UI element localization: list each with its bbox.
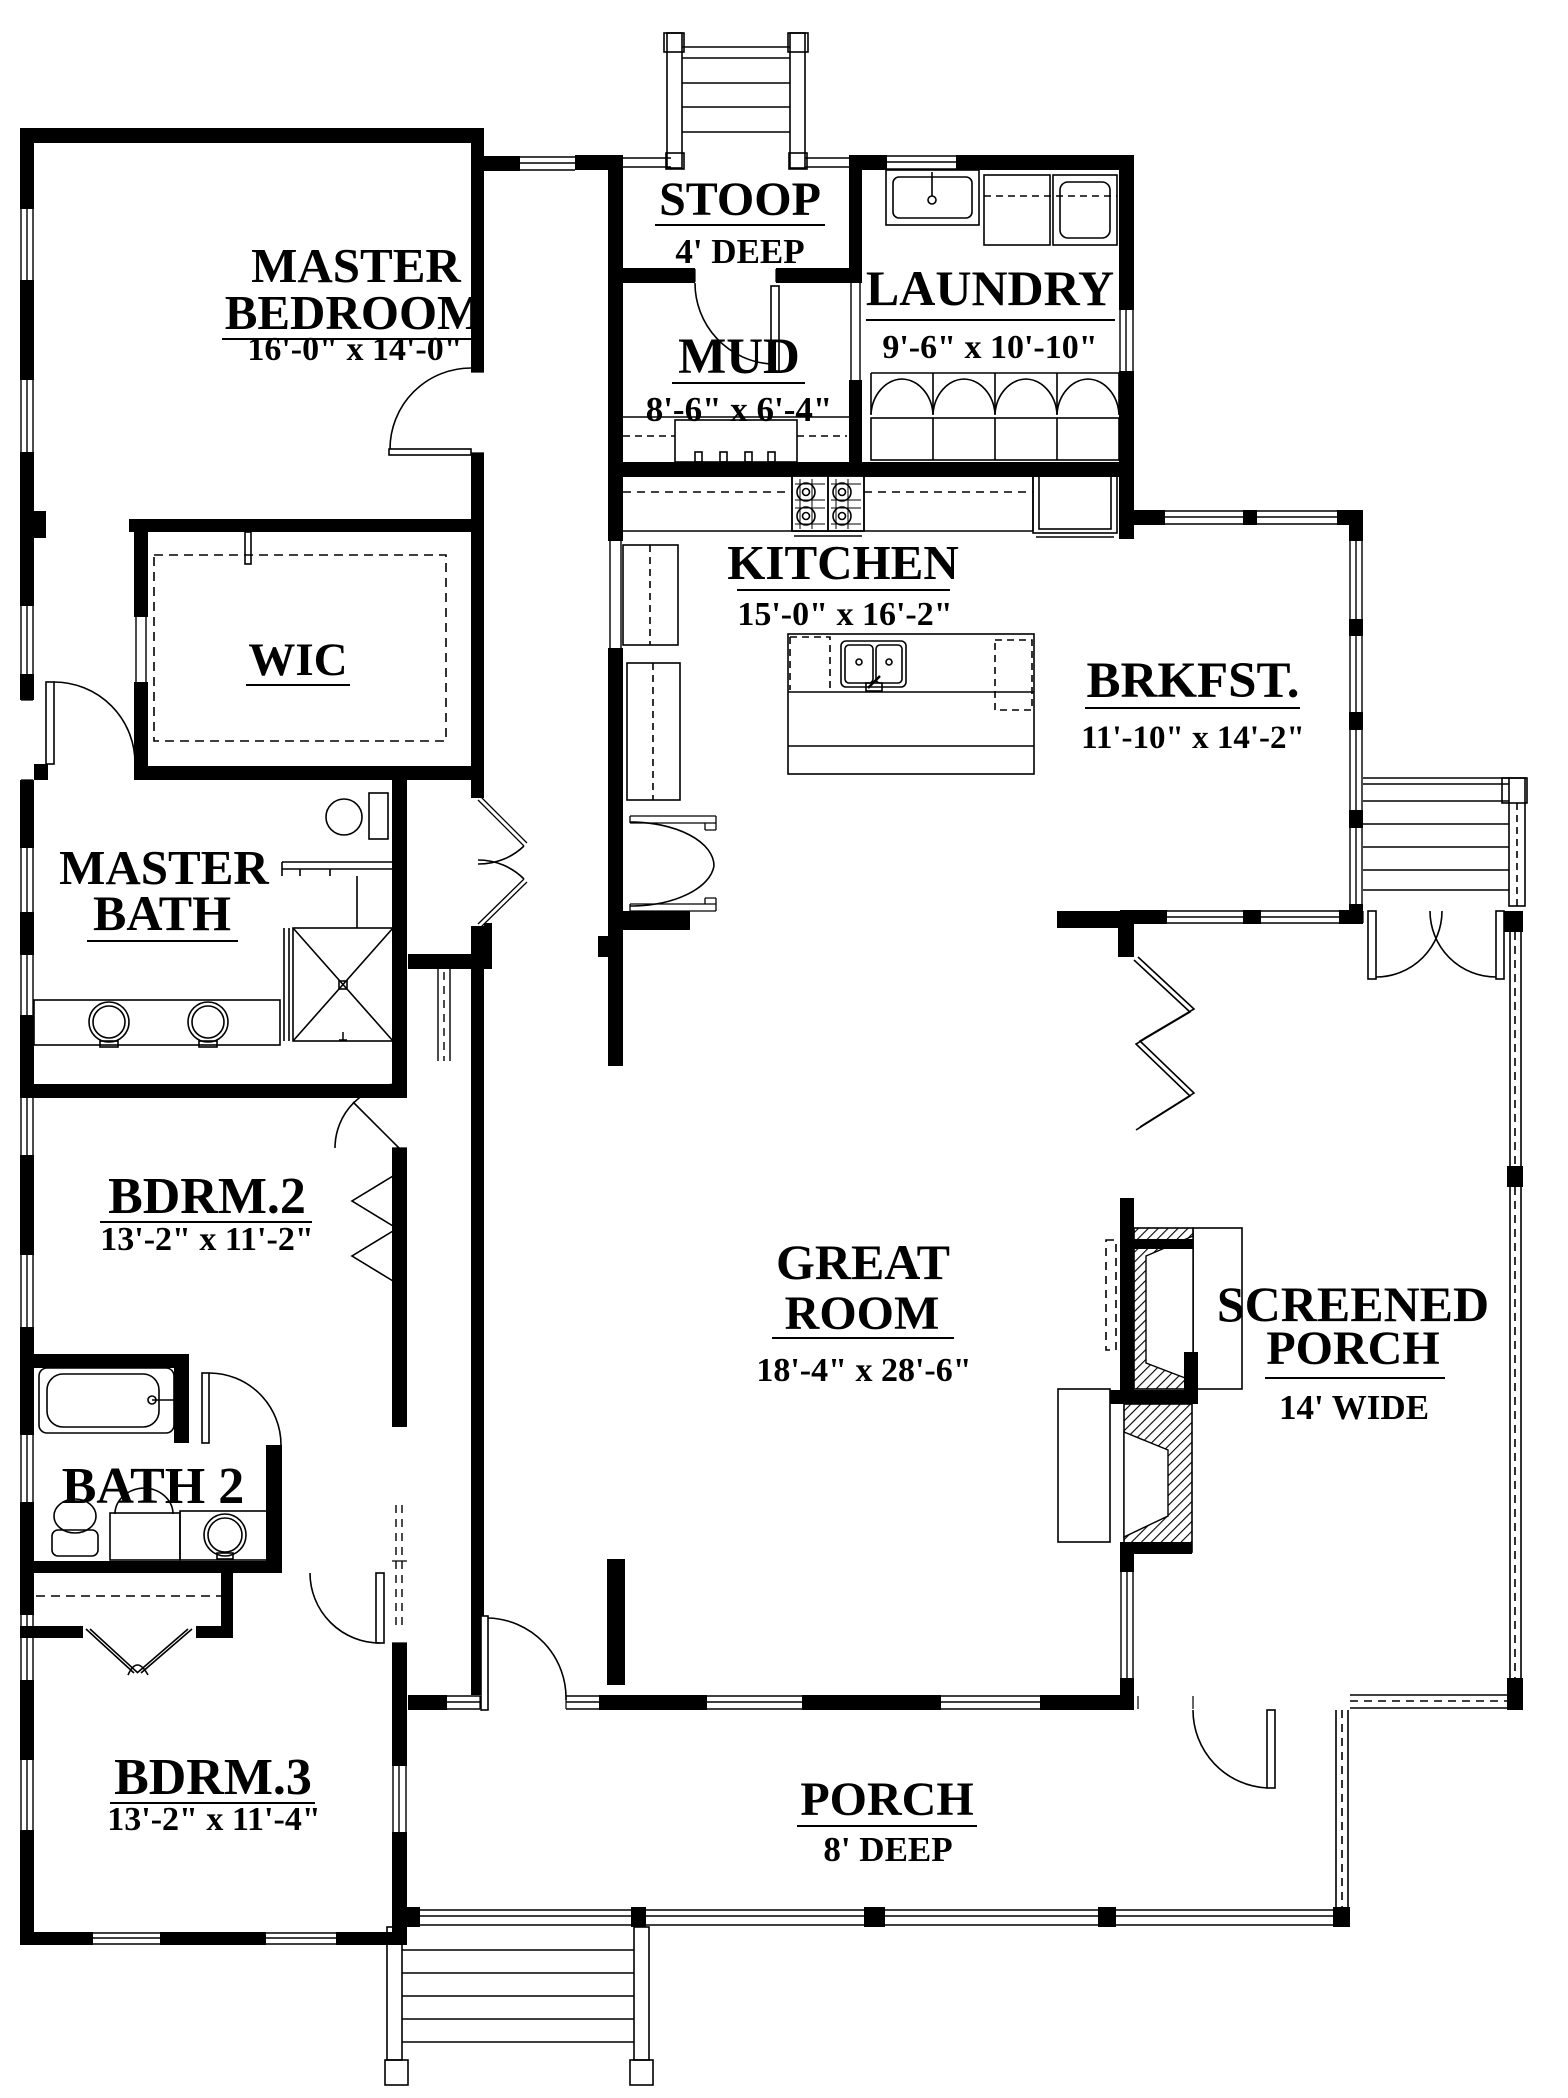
svg-text:LAUNDRY: LAUNDRY	[866, 260, 1114, 316]
svg-text:8' DEEP: 8' DEEP	[823, 1830, 952, 1869]
svg-text:WIC: WIC	[248, 634, 347, 686]
svg-text:PORCH: PORCH	[800, 1773, 973, 1826]
svg-text:BDRM.3: BDRM.3	[114, 1749, 312, 1806]
svg-text:18'-4" x 28'-6": 18'-4" x 28'-6"	[756, 1352, 971, 1389]
svg-text:ROOM: ROOM	[785, 1287, 940, 1340]
svg-text:BATH: BATH	[93, 885, 231, 941]
svg-text:13'-2" x 11'-4": 13'-2" x 11'-4"	[107, 1801, 320, 1838]
svg-text:BRKFST.: BRKFST.	[1086, 653, 1299, 709]
svg-text:9'-6" x 10'-10": 9'-6" x 10'-10"	[882, 329, 1097, 366]
svg-text:4' DEEP: 4' DEEP	[675, 232, 804, 271]
svg-text:PORCH: PORCH	[1266, 1322, 1439, 1375]
svg-text:BATH 2: BATH 2	[62, 1458, 245, 1515]
svg-text:KITCHEN: KITCHEN	[727, 535, 958, 590]
svg-text:14' WIDE: 14' WIDE	[1279, 1388, 1429, 1427]
svg-text:BDRM.2: BDRM.2	[108, 1168, 306, 1225]
svg-text:15'-0" x 16'-2": 15'-0" x 16'-2"	[737, 596, 952, 633]
svg-text:GREAT: GREAT	[776, 1234, 950, 1290]
svg-text:8'-6" x 6'-4": 8'-6" x 6'-4"	[646, 390, 833, 429]
svg-text:MUD: MUD	[678, 329, 800, 385]
svg-text:STOOP: STOOP	[659, 173, 821, 226]
svg-text:11'-10" x 14'-2": 11'-10" x 14'-2"	[1081, 720, 1305, 756]
svg-text:13'-2" x 11'-2": 13'-2" x 11'-2"	[100, 1221, 313, 1258]
svg-text:16'-0" x 14'-0": 16'-0" x 14'-0"	[247, 331, 462, 368]
